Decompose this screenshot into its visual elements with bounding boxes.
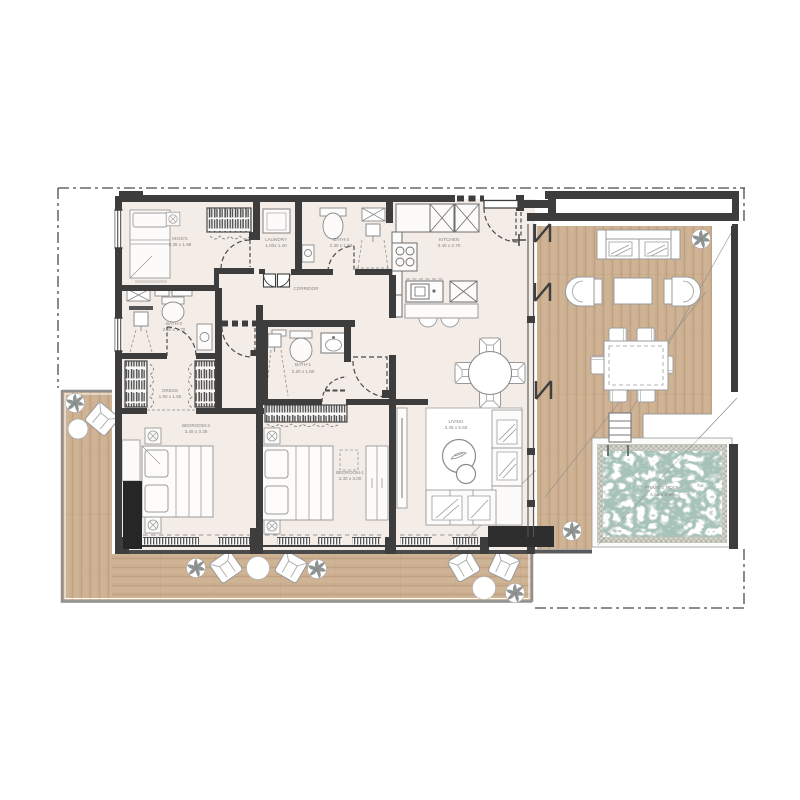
svg-text:KITCHEN: KITCHEN	[439, 237, 459, 242]
svg-text:3.30 x 3.00: 3.30 x 3.00	[339, 476, 362, 481]
svg-text:MAID'S: MAID'S	[172, 236, 187, 241]
svg-text:3.35 x 1.96: 3.35 x 1.96	[169, 242, 192, 247]
svg-text:BEDROOM-1: BEDROOM-1	[336, 470, 364, 475]
svg-text:BATH-3: BATH-3	[333, 237, 349, 242]
svg-text:PRIVATE POOL: PRIVATE POOL	[645, 485, 680, 491]
svg-text:DRESS: DRESS	[162, 388, 178, 393]
svg-text:3.45 x 3.25: 3.45 x 3.25	[185, 429, 208, 434]
svg-text:CORRIDOR: CORRIDOR	[293, 286, 319, 291]
svg-text:2.20 x 1.80: 2.20 x 1.80	[292, 369, 315, 374]
svg-text:2.30 x 1.60: 2.30 x 1.60	[330, 243, 353, 248]
svg-text:2.20 x 1.70: 2.20 x 1.70	[163, 327, 186, 332]
svg-text:LIVING: LIVING	[448, 419, 463, 424]
svg-text:LAUNDRY: LAUNDRY	[265, 237, 287, 242]
svg-text:BEDROOM-2: BEDROOM-2	[182, 423, 210, 428]
svg-text:BATH-1: BATH-1	[295, 362, 311, 367]
svg-text:3.45 x 5.50: 3.45 x 5.50	[445, 425, 468, 430]
svg-text:3.40 x 2.70: 3.40 x 2.70	[438, 243, 461, 248]
svg-text:1.90 x 1.55: 1.90 x 1.55	[159, 394, 182, 399]
svg-text:4.50 x 2.90: 4.50 x 2.90	[650, 492, 674, 498]
svg-text:1.00x 1.40: 1.00x 1.40	[265, 243, 287, 248]
svg-text:BATH-2: BATH-2	[166, 321, 182, 326]
